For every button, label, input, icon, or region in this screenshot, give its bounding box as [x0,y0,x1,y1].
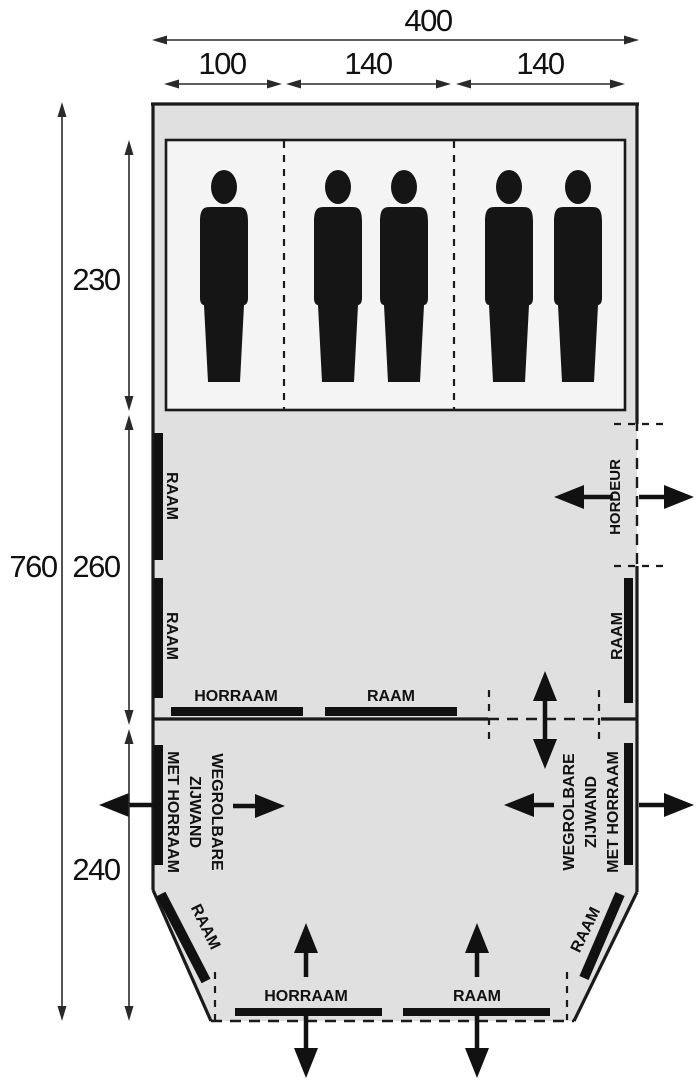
svg-text:ZIJWAND: ZIJWAND [583,776,600,848]
window-bar-left-3 [154,745,163,865]
dim-compartment-2: 140 [344,46,392,81]
window-bar-left-2 [154,578,163,698]
dim-total-width: 400 [404,3,452,38]
label-raam-left-1: RAAM [163,472,180,520]
dim-compartment-3: 140 [516,46,564,81]
front-horraam-arrow-out [294,1016,318,1078]
window-bar-front-horraam [235,1008,382,1016]
window-bar-front-raam [403,1008,550,1016]
dim-line-total-width [152,36,639,45]
svg-text:WEGROLBARE: WEGROLBARE [561,753,578,871]
svg-text:WEGROLBARE: WEGROLBARE [208,753,225,871]
left-sidewall-arrow-out [99,793,154,817]
dim-total-depth: 760 [9,549,57,584]
label-raam-left-2: RAAM [163,612,180,660]
label-raam-right-1: RAAM [609,612,626,660]
front-raam-arrow-out [465,1016,489,1078]
svg-text:MET HORRAAM: MET HORRAAM [605,751,622,873]
dim-segment-230: 230 [72,262,120,297]
dim-segment-260: 260 [72,549,120,584]
svg-text:MET HORRAAM: MET HORRAAM [164,751,181,873]
tent-floorplan-diagram: 400 100 140 140 760 230 260 240 [0,0,697,1080]
dim-segment-240: 240 [72,852,120,887]
label-horraam-mid: HORRAAM [194,688,278,705]
right-sidewall-arrow-out [639,793,694,817]
label-raam-front: RAAM [453,988,501,1005]
floorplan-svg: 400 100 140 140 760 230 260 240 [0,0,697,1080]
hordeur-arrow-out [639,485,694,509]
label-raam-mid: RAAM [367,688,415,705]
svg-text:ZIJWAND: ZIJWAND [186,776,203,848]
label-horraam-front: HORRAAM [264,988,348,1005]
window-bar-right-2 [624,743,633,865]
dim-compartment-1: 100 [198,46,246,81]
label-hordeur: HORDEUR [607,459,624,535]
dim-line-total-depth [58,102,67,1021]
dim-line-depth-segments [125,140,134,1021]
window-bar-mid-raam [325,707,457,716]
window-bar-left-1 [154,433,163,560]
window-bar-mid-horraam [171,707,303,716]
